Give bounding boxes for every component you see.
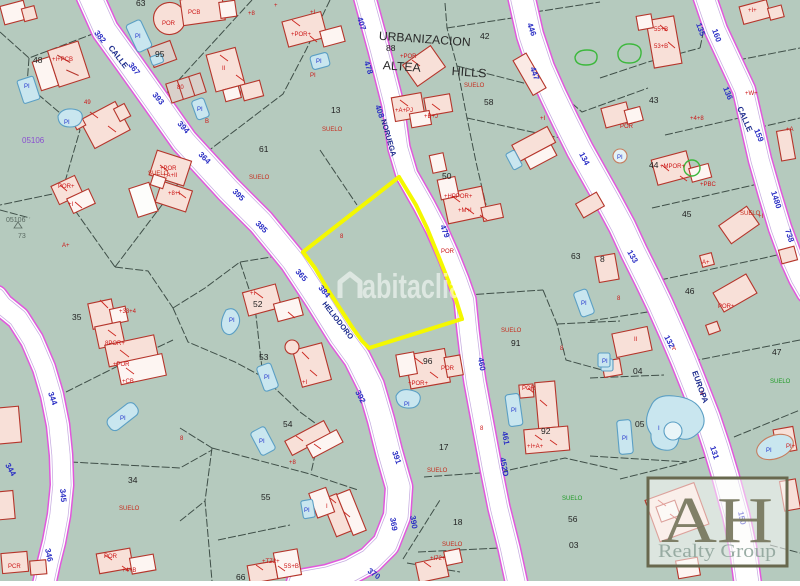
svg-text:+M+I: +M+I xyxy=(458,208,472,214)
svg-text:8POR+: 8POR+ xyxy=(105,341,125,347)
svg-text:POR: POR xyxy=(522,386,536,392)
svg-text:abitaclia: abitaclia xyxy=(362,268,464,306)
svg-text:PI+: PI+ xyxy=(786,444,796,450)
svg-text:56: 56 xyxy=(568,514,578,524)
svg-text:63: 63 xyxy=(571,251,581,261)
svg-text:SUELO: SUELO xyxy=(442,542,463,548)
svg-text:55: 55 xyxy=(261,492,271,502)
svg-text:+I+PCB: +I+PCB xyxy=(52,57,73,63)
svg-text:96: 96 xyxy=(423,356,433,366)
svg-text:95: 95 xyxy=(155,49,165,59)
svg-text:PI: PI xyxy=(511,408,517,414)
svg-text:PI: PI xyxy=(229,318,235,324)
svg-text:SUELO: SUELO xyxy=(501,328,522,334)
svg-text:PI: PI xyxy=(304,508,310,514)
svg-text:+W+: +W+ xyxy=(745,91,758,97)
svg-text:+8+I: +8+I xyxy=(168,191,180,197)
svg-text:54: 54 xyxy=(283,419,293,429)
svg-text:17: 17 xyxy=(439,442,449,452)
svg-text:PI: PI xyxy=(581,301,587,307)
svg-text:88: 88 xyxy=(386,43,396,53)
svg-text:58: 58 xyxy=(484,97,494,107)
svg-text:61: 61 xyxy=(259,144,269,154)
svg-text:PI: PI xyxy=(622,436,628,442)
svg-text:PI: PI xyxy=(197,107,203,113)
svg-text:+I+: +I+ xyxy=(748,8,757,14)
svg-text:50: 50 xyxy=(442,171,452,181)
svg-text:II: II xyxy=(222,66,226,72)
svg-text:POR: POR xyxy=(441,366,455,372)
svg-text:A+: A+ xyxy=(62,243,70,249)
svg-text:PI: PI xyxy=(135,34,141,40)
svg-text:73: 73 xyxy=(18,233,26,240)
svg-text:+A: +A xyxy=(786,127,794,133)
svg-text:PI: PI xyxy=(24,84,30,90)
svg-text:+CB: +CB xyxy=(122,379,134,385)
svg-text:ALTEA: ALTEA xyxy=(382,58,421,75)
svg-text:47: 47 xyxy=(772,347,782,357)
svg-text:35: 35 xyxy=(72,312,82,322)
svg-text:SUELO: SUELO xyxy=(427,468,448,474)
svg-text:Realty Group: Realty Group xyxy=(658,541,776,562)
svg-text:PI: PI xyxy=(259,439,265,445)
svg-text:+4+B: +4+B xyxy=(122,568,136,574)
svg-text:+I: +I xyxy=(310,10,316,16)
svg-text:+I: +I xyxy=(540,116,546,122)
svg-text:+I: +I xyxy=(250,291,256,297)
svg-text:53+B: 53+B xyxy=(654,44,668,50)
svg-text:05106: 05106 xyxy=(6,217,26,224)
svg-text:42: 42 xyxy=(480,31,490,41)
svg-text:80: 80 xyxy=(177,85,184,91)
svg-text:+TZ2+: +TZ2+ xyxy=(262,559,280,565)
svg-text:92: 92 xyxy=(541,426,551,436)
svg-text:PI: PI xyxy=(766,448,772,454)
svg-text:03: 03 xyxy=(569,540,579,550)
svg-text:55+B: 55+B xyxy=(654,27,668,33)
svg-text:SUELO: SUELO xyxy=(249,175,270,181)
svg-text:345: 345 xyxy=(58,488,68,503)
svg-text:05: 05 xyxy=(635,419,645,429)
svg-text:63: 63 xyxy=(136,0,146,8)
svg-text:+: + xyxy=(274,3,278,9)
svg-text:SUELO: SUELO xyxy=(119,506,140,512)
svg-text:PI: PI xyxy=(602,359,608,365)
svg-text:+A+PJ: +A+PJ xyxy=(395,108,413,114)
svg-text:POR: POR xyxy=(441,249,455,255)
svg-text:43: 43 xyxy=(649,95,659,105)
svg-text:POR: POR xyxy=(104,554,118,560)
svg-text:5S+B: 5S+B xyxy=(284,564,299,570)
svg-text:34: 34 xyxy=(128,475,138,485)
svg-text:49: 49 xyxy=(84,100,91,106)
svg-text:+MPOR+: +MPOR+ xyxy=(660,164,686,170)
svg-text:POR+: POR+ xyxy=(718,304,735,310)
svg-text:8: 8 xyxy=(600,254,605,264)
svg-text:B: B xyxy=(205,119,209,125)
svg-text:+HPPOR+: +HPPOR+ xyxy=(444,194,473,200)
svg-text:PI: PI xyxy=(310,73,316,79)
svg-text:PI: PI xyxy=(316,59,322,65)
svg-text:PI: PI xyxy=(120,416,126,422)
svg-text:PCR: PCR xyxy=(8,564,21,570)
svg-text:+I: +I xyxy=(302,380,308,386)
svg-text:91: 91 xyxy=(511,338,521,348)
svg-text:SUELO: SUELO xyxy=(740,211,761,217)
svg-text:PI: PI xyxy=(617,155,623,161)
svg-text:+8: +8 xyxy=(248,11,256,17)
svg-text:+8: +8 xyxy=(289,460,297,466)
svg-text:+POR: +POR xyxy=(113,362,130,368)
svg-text:52: 52 xyxy=(253,299,263,309)
svg-text:PI: PI xyxy=(264,375,270,381)
svg-text:+I: +I xyxy=(68,202,74,208)
svg-text:PCB: PCB xyxy=(188,10,200,16)
svg-text:+I+A+: +I+A+ xyxy=(527,444,544,450)
svg-text:SUELO: SUELO xyxy=(464,83,485,89)
svg-text:05106: 05106 xyxy=(22,136,45,145)
svg-text:04: 04 xyxy=(633,366,643,376)
svg-text:SUELO: SUELO xyxy=(322,127,343,133)
svg-text:+4+8: +4+8 xyxy=(690,116,704,122)
svg-text:48: 48 xyxy=(33,55,43,65)
svg-text:46: 46 xyxy=(685,286,695,296)
svg-text:53: 53 xyxy=(259,352,269,362)
svg-text:+POR+: +POR+ xyxy=(408,381,429,387)
svg-text:SUELO: SUELO xyxy=(148,171,169,177)
svg-text:PI: PI xyxy=(404,402,410,408)
svg-text:66: 66 xyxy=(236,572,246,581)
svg-text:18: 18 xyxy=(453,517,463,527)
svg-text:+POR+: +POR+ xyxy=(291,32,312,38)
svg-text:POR+: POR+ xyxy=(58,184,75,190)
svg-text:II: II xyxy=(634,337,638,343)
svg-text:+I72+: +I72+ xyxy=(430,556,446,562)
svg-text:SUELO: SUELO xyxy=(562,496,583,502)
svg-text:POR: POR xyxy=(162,21,176,27)
svg-text:SUELO: SUELO xyxy=(770,379,791,385)
svg-text:PI: PI xyxy=(64,120,70,126)
svg-text:45: 45 xyxy=(682,209,692,219)
svg-text:+33+4: +33+4 xyxy=(119,309,137,315)
svg-text:HILLS: HILLS xyxy=(451,64,487,80)
svg-text:44: 44 xyxy=(649,160,659,170)
svg-text:POR: POR xyxy=(620,124,634,130)
svg-text:A+: A+ xyxy=(702,260,710,266)
svg-text:+B+J: +B+J xyxy=(424,114,438,120)
svg-text:+PBC: +PBC xyxy=(700,182,717,188)
svg-text:13: 13 xyxy=(331,105,341,115)
